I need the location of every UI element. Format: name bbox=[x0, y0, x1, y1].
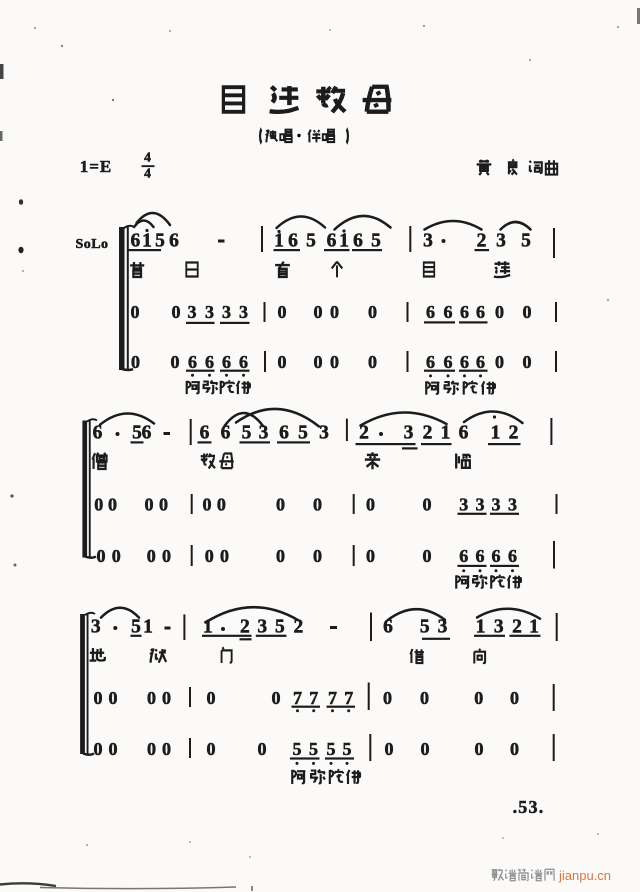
svg-text:0: 0 bbox=[314, 352, 323, 372]
svg-text:5: 5 bbox=[306, 231, 316, 252]
svg-text:0: 0 bbox=[475, 739, 484, 759]
svg-text:6: 6 bbox=[169, 231, 179, 252]
svg-text:2: 2 bbox=[509, 422, 519, 443]
svg-text:0: 0 bbox=[272, 688, 281, 708]
svg-text:3: 3 bbox=[91, 616, 101, 637]
svg-text:2: 2 bbox=[423, 422, 433, 443]
svg-text:0: 0 bbox=[495, 352, 504, 372]
svg-text:0: 0 bbox=[510, 739, 519, 759]
svg-text:6: 6 bbox=[200, 422, 210, 443]
svg-text:0: 0 bbox=[314, 302, 323, 322]
svg-text:6: 6 bbox=[444, 302, 453, 322]
svg-text:0: 0 bbox=[109, 739, 118, 759]
svg-text:6: 6 bbox=[426, 352, 435, 372]
svg-text:0: 0 bbox=[207, 688, 216, 708]
svg-text:0: 0 bbox=[171, 352, 180, 372]
svg-text:5: 5 bbox=[327, 739, 336, 759]
svg-text:1: 1 bbox=[339, 231, 349, 252]
svg-text:5: 5 bbox=[293, 739, 302, 759]
svg-text:5: 5 bbox=[275, 616, 285, 637]
svg-text:7: 7 bbox=[293, 688, 302, 708]
svg-text:3: 3 bbox=[496, 231, 506, 252]
svg-text:6: 6 bbox=[205, 352, 214, 372]
svg-text:0: 0 bbox=[217, 495, 226, 515]
svg-text:5: 5 bbox=[343, 739, 352, 759]
svg-text:1: 1 bbox=[142, 231, 152, 252]
svg-text:0: 0 bbox=[109, 688, 118, 708]
svg-text:5: 5 bbox=[521, 231, 531, 252]
svg-text:1: 1 bbox=[476, 616, 486, 637]
svg-text:2: 2 bbox=[512, 616, 522, 637]
svg-text:0: 0 bbox=[330, 302, 339, 322]
svg-text:0: 0 bbox=[94, 739, 103, 759]
svg-text:0: 0 bbox=[368, 302, 377, 322]
svg-text:0: 0 bbox=[159, 495, 168, 515]
svg-text:3: 3 bbox=[257, 616, 267, 637]
svg-text:6: 6 bbox=[444, 352, 453, 372]
svg-text:5: 5 bbox=[242, 422, 252, 443]
svg-text:0: 0 bbox=[258, 739, 267, 759]
svg-text:0: 0 bbox=[145, 495, 154, 515]
svg-text:0: 0 bbox=[383, 688, 392, 708]
svg-text:2: 2 bbox=[477, 231, 487, 252]
svg-text:0: 0 bbox=[131, 352, 140, 372]
svg-text:SoLo: SoLo bbox=[75, 237, 108, 252]
svg-text:3: 3 bbox=[492, 495, 501, 515]
svg-text:6: 6 bbox=[459, 422, 469, 443]
svg-text:0: 0 bbox=[313, 546, 322, 566]
svg-text:7: 7 bbox=[344, 688, 353, 708]
svg-text:5: 5 bbox=[298, 422, 308, 443]
svg-text:0: 0 bbox=[112, 546, 121, 566]
svg-text:0: 0 bbox=[278, 302, 287, 322]
svg-text:6: 6 bbox=[142, 422, 152, 443]
svg-text:5: 5 bbox=[371, 231, 381, 252]
svg-text:3: 3 bbox=[459, 495, 468, 515]
svg-text:6: 6 bbox=[288, 231, 298, 252]
svg-text:3: 3 bbox=[205, 302, 214, 322]
svg-text:3: 3 bbox=[319, 422, 329, 443]
svg-text:0: 0 bbox=[97, 546, 106, 566]
svg-text:6: 6 bbox=[222, 352, 231, 372]
svg-text:1: 1 bbox=[274, 231, 284, 252]
svg-text:0: 0 bbox=[131, 302, 140, 322]
svg-text:0: 0 bbox=[147, 546, 156, 566]
svg-text:1: 1 bbox=[529, 616, 539, 637]
svg-text:0: 0 bbox=[366, 546, 375, 566]
svg-text:0: 0 bbox=[495, 302, 504, 322]
svg-text:6: 6 bbox=[492, 546, 501, 566]
svg-text:0: 0 bbox=[172, 302, 181, 322]
svg-text:6: 6 bbox=[279, 422, 289, 443]
svg-text:6: 6 bbox=[460, 352, 469, 372]
svg-text:6: 6 bbox=[426, 302, 435, 322]
svg-text:0: 0 bbox=[207, 739, 216, 759]
svg-text:0: 0 bbox=[162, 546, 171, 566]
svg-text:5: 5 bbox=[131, 616, 141, 637]
svg-text:5: 5 bbox=[420, 616, 430, 637]
svg-text:2: 2 bbox=[240, 616, 250, 637]
svg-text:jianpu.cn: jianpu.cn bbox=[558, 868, 611, 883]
svg-text:6: 6 bbox=[327, 231, 337, 252]
svg-text:0: 0 bbox=[510, 688, 519, 708]
svg-text:0: 0 bbox=[162, 739, 171, 759]
svg-text:0: 0 bbox=[108, 495, 117, 515]
svg-text:1=E: 1=E bbox=[80, 157, 113, 176]
svg-text:7: 7 bbox=[328, 688, 337, 708]
svg-text:0: 0 bbox=[330, 352, 339, 372]
svg-text:0: 0 bbox=[278, 352, 287, 372]
svg-text:6: 6 bbox=[459, 546, 468, 566]
svg-text:6: 6 bbox=[353, 231, 363, 252]
svg-text:0: 0 bbox=[420, 688, 429, 708]
svg-text:1: 1 bbox=[143, 616, 153, 637]
svg-text:0: 0 bbox=[313, 495, 322, 515]
svg-text:5: 5 bbox=[155, 231, 165, 252]
svg-text:0: 0 bbox=[94, 688, 103, 708]
svg-text:6: 6 bbox=[188, 352, 197, 372]
svg-text:1: 1 bbox=[441, 422, 451, 443]
svg-text:0: 0 bbox=[276, 546, 285, 566]
svg-text:0: 0 bbox=[523, 302, 532, 322]
svg-text:0: 0 bbox=[220, 546, 229, 566]
svg-text:0: 0 bbox=[276, 495, 285, 515]
svg-text:0: 0 bbox=[385, 739, 394, 759]
svg-text:3: 3 bbox=[404, 422, 414, 443]
svg-text:0: 0 bbox=[366, 495, 375, 515]
svg-text:0: 0 bbox=[147, 739, 156, 759]
svg-text:0: 0 bbox=[423, 495, 432, 515]
svg-text:6: 6 bbox=[93, 422, 103, 443]
svg-text:0: 0 bbox=[147, 688, 156, 708]
svg-text:6: 6 bbox=[460, 302, 469, 322]
svg-text:4: 4 bbox=[144, 150, 151, 165]
svg-text:1: 1 bbox=[491, 422, 501, 443]
svg-text:0: 0 bbox=[203, 495, 212, 515]
svg-text:6: 6 bbox=[476, 546, 485, 566]
svg-text:0: 0 bbox=[421, 739, 430, 759]
svg-text:3: 3 bbox=[188, 302, 197, 322]
svg-text:6: 6 bbox=[131, 231, 141, 252]
svg-text:3: 3 bbox=[508, 495, 517, 515]
svg-text:3: 3 bbox=[222, 302, 231, 322]
svg-text:6: 6 bbox=[239, 352, 248, 372]
svg-text:0: 0 bbox=[94, 495, 103, 515]
svg-text:4: 4 bbox=[144, 166, 151, 181]
svg-text:6: 6 bbox=[476, 352, 485, 372]
svg-text:0: 0 bbox=[523, 352, 532, 372]
svg-text:0: 0 bbox=[162, 688, 171, 708]
svg-text:6: 6 bbox=[508, 546, 517, 566]
svg-text:3: 3 bbox=[494, 616, 504, 637]
svg-text:0: 0 bbox=[423, 546, 432, 566]
svg-text:0: 0 bbox=[474, 688, 483, 708]
svg-text:5: 5 bbox=[132, 422, 142, 443]
svg-text:3: 3 bbox=[476, 495, 485, 515]
svg-text:3: 3 bbox=[423, 231, 433, 252]
svg-text:.53.: .53. bbox=[513, 797, 545, 817]
svg-text:0: 0 bbox=[368, 352, 377, 372]
svg-text:3: 3 bbox=[239, 302, 248, 322]
svg-text:7: 7 bbox=[309, 688, 318, 708]
svg-text:5: 5 bbox=[309, 739, 318, 759]
svg-text:0: 0 bbox=[205, 546, 214, 566]
svg-text:6: 6 bbox=[476, 302, 485, 322]
